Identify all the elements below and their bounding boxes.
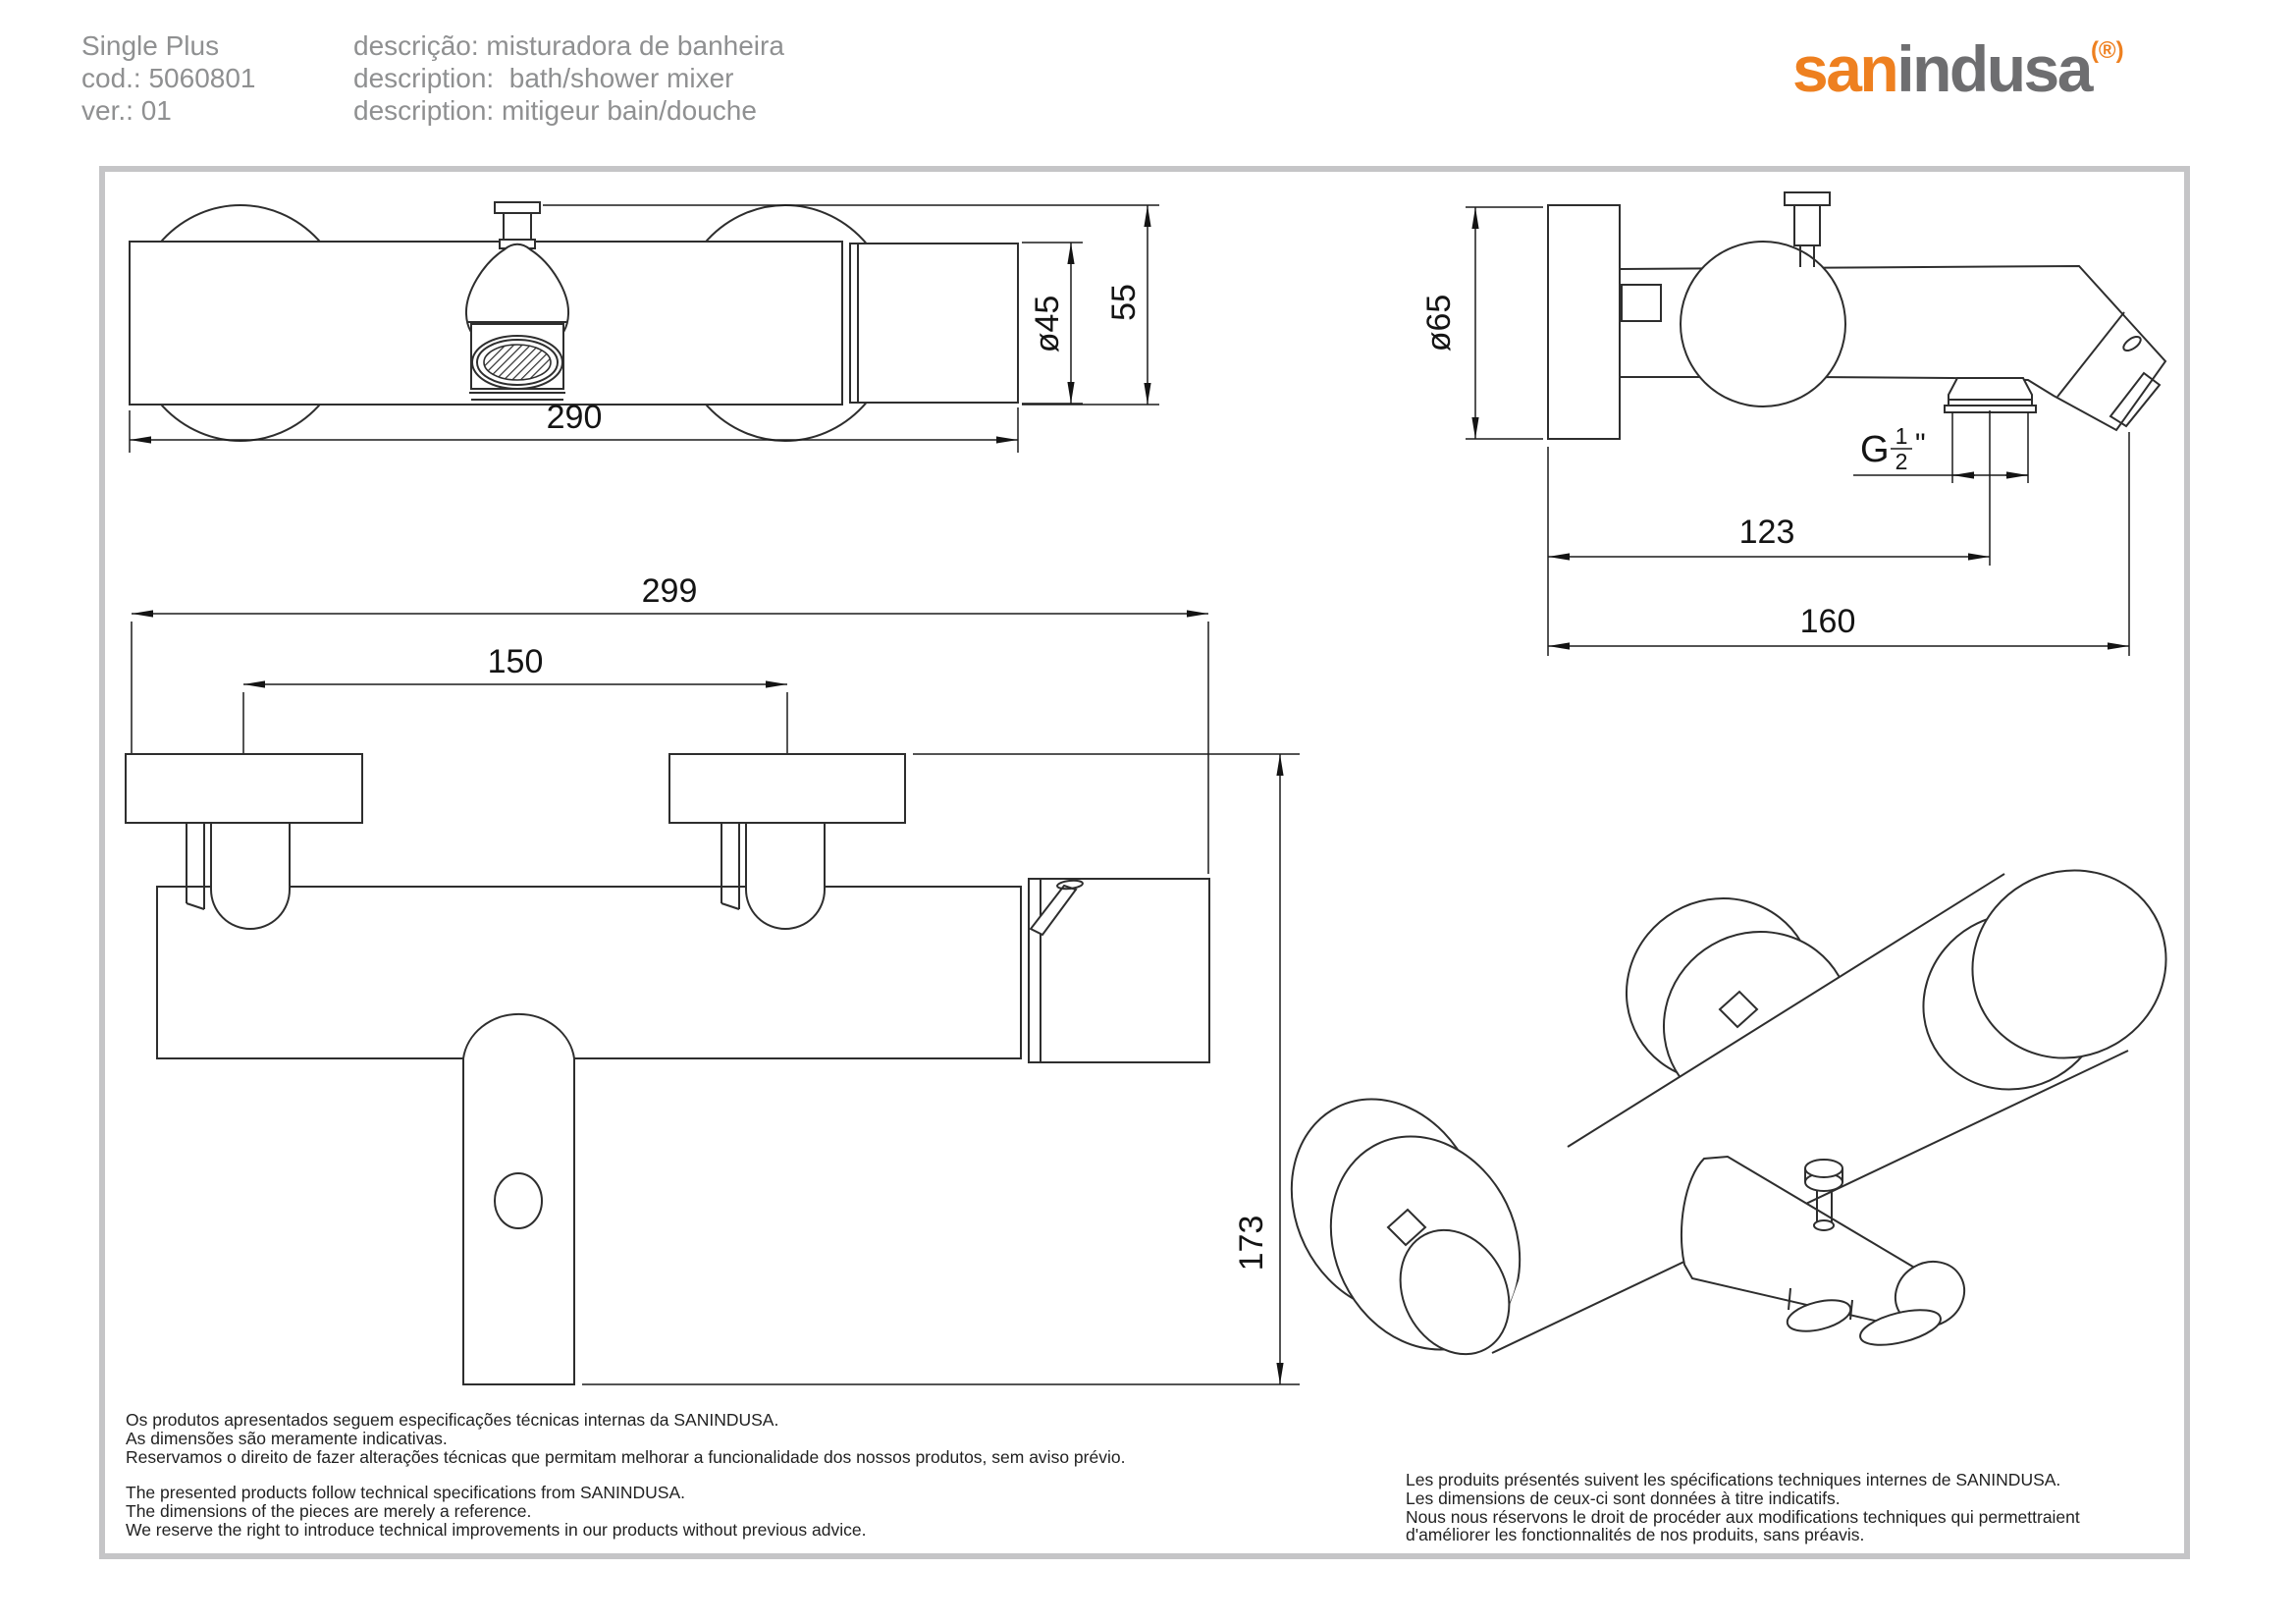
thread-denominator: 2 [1896, 449, 1908, 474]
side-view-wall-plate [1548, 205, 1620, 439]
dim-150-label: 150 [488, 643, 544, 680]
top-view-handle [850, 244, 1018, 403]
thread-numerator: 1 [1896, 423, 1908, 449]
dim-55-label: 55 [1105, 284, 1143, 321]
dim-123-label: 123 [1739, 514, 1795, 551]
technical-drawing: 290 ø45 55 [0, 0, 2296, 1624]
dim-o45: ø45 [1022, 243, 1083, 404]
dim-290: 290 [130, 399, 1018, 453]
front-view-spout-column [463, 1014, 574, 1384]
front-view: 299 150 [126, 572, 1300, 1384]
note-pt-2: As dimensões são meramente indicativas. [126, 1430, 1125, 1448]
note-en-1: The presented products follow technical … [126, 1484, 1125, 1502]
top-view: 290 ø45 55 [130, 202, 1159, 453]
side-view-handle-knob [1681, 242, 1845, 406]
dim-g-half-inch: G 1 2 " [1853, 412, 2028, 483]
dim-290-label: 290 [547, 399, 603, 436]
dim-173-label: 173 [1233, 1216, 1270, 1272]
side-view-inlet [1622, 285, 1661, 321]
aerator-face [484, 345, 551, 380]
thread-inch: " [1915, 428, 1926, 460]
dim-299-label: 299 [642, 572, 698, 610]
dim-160: 160 [1548, 432, 2129, 656]
dim-o65-label: ø65 [1420, 295, 1458, 352]
note-en-2: The dimensions of the pieces are merely … [126, 1502, 1125, 1521]
front-view-right-flange [669, 754, 905, 823]
dim-160-label: 160 [1800, 603, 1856, 640]
dim-o45-label: ø45 [1029, 296, 1066, 353]
note-fr-1: Les produits présentés suivent les spéci… [1406, 1471, 2080, 1489]
dim-o65: ø65 [1420, 207, 1543, 439]
note-fr-2: Les dimensions de ceux-ci sont données à… [1406, 1489, 2080, 1508]
iso-view [1256, 836, 2200, 1381]
note-en-3: We reserve the right to introduce techni… [126, 1521, 1125, 1540]
dim-150: 150 [243, 643, 787, 770]
note-pt-1: Os produtos apresentados seguem especifi… [126, 1411, 1125, 1430]
front-view-left-flange [126, 754, 362, 823]
dim-173: 173 [582, 754, 1300, 1384]
footer-notes-fr: Les produits présentés suivent les spéci… [1406, 1471, 2080, 1544]
note-fr-4: d'améliorer les fonctionnalités de nos p… [1406, 1526, 2080, 1544]
footer-notes-pt-en: Os produtos apresentados seguem especifi… [126, 1411, 1125, 1540]
side-view: ø65 G 1 2 " 123 [1420, 192, 2165, 656]
note-pt-3: Reservamos o direito de fazer alterações… [126, 1448, 1125, 1467]
thread-g: G [1860, 429, 1890, 470]
note-fr-3: Nous nous réservons le droit de procéder… [1406, 1508, 2080, 1527]
datasheet-page: Single Plus cod.: 5060801 ver.: 01 descr… [0, 0, 2296, 1624]
side-view-shower-outlet [1945, 378, 2036, 412]
front-view-body [157, 887, 1021, 1058]
dim-299: 299 [132, 572, 1208, 874]
